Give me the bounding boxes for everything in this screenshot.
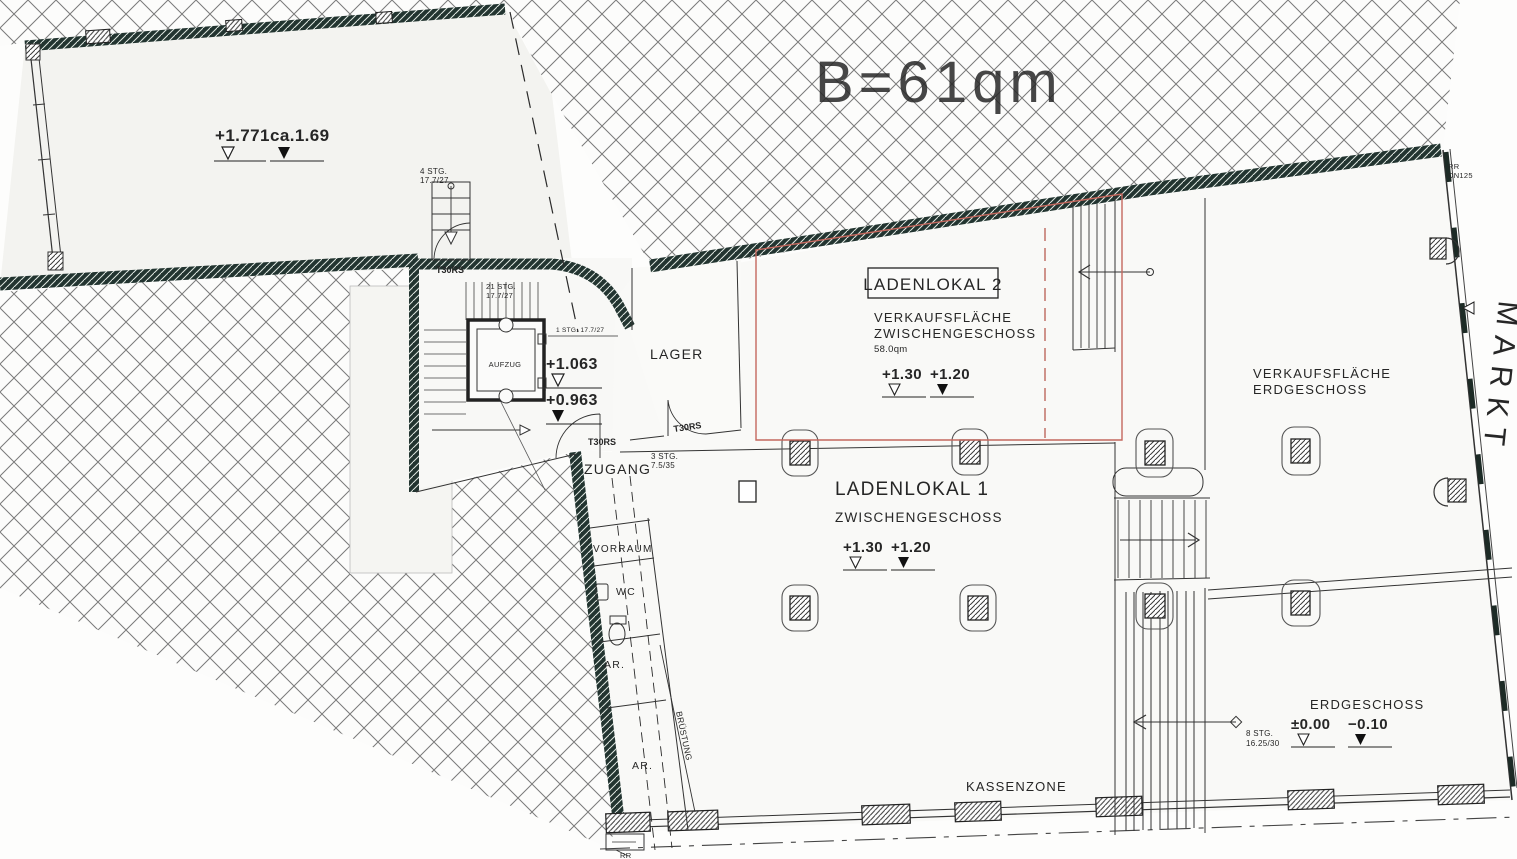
stair-label: 16.25/30	[1246, 739, 1280, 748]
wall-pier	[226, 19, 243, 31]
room-label-wc: WC	[616, 586, 636, 598]
room-subtitle: VERKAUFSFLÄCHE	[874, 310, 1012, 325]
elevation-value: +0.963	[546, 392, 598, 409]
storefront-pier	[1096, 796, 1143, 817]
door-label-t30rs: T30RS	[588, 437, 616, 447]
rainpipe-label: RR	[1448, 162, 1460, 171]
stair-label: 17.7/27	[486, 291, 513, 300]
room-title: ERDGESCHOSS	[1310, 697, 1424, 712]
stair-label: 1 STG. 17.7/27	[556, 327, 604, 334]
stair-label: 7.5/35	[651, 461, 675, 470]
zone-label-kassenzone: KASSENZONE	[966, 779, 1067, 794]
wall-pier	[376, 11, 393, 23]
room-subtitle: VERKAUFSFLÄCHE	[1253, 366, 1391, 381]
floor-plan-page: B=61qm +1.771 ca.1.69 +1.063 +0.963 LADE…	[0, 0, 1517, 859]
rainpipe-label: RR	[620, 851, 632, 859]
elevation-value: +1.20	[891, 539, 931, 556]
elevation-value: −0.10	[1348, 716, 1388, 733]
area-note-red-text: B=61qm	[815, 50, 1063, 115]
elevation-value: +1.30	[882, 366, 922, 383]
room-label-ar: AR.	[632, 760, 653, 772]
storefront-pier	[1288, 789, 1335, 810]
rainpipe-size-label: DN125	[1448, 171, 1473, 180]
room-label-zugang: ZUGANG	[584, 461, 651, 477]
room-label-vorraum: VORRAUM	[593, 544, 653, 555]
elevator-door-symbol	[499, 318, 513, 332]
door-label-t30rs: T30RS	[436, 265, 464, 275]
elevation-value: ±0.00	[1291, 716, 1330, 733]
elevation-value: +1.30	[843, 539, 883, 556]
elevation-value: +1.771	[215, 126, 270, 145]
stair-label: 4 STG.	[420, 167, 447, 176]
room-area: 58.0qm	[874, 344, 908, 355]
storefront-pier	[1438, 784, 1485, 805]
storefront-pier	[606, 812, 651, 833]
storefront-pier	[668, 810, 719, 831]
elevation-value: +1.20	[930, 366, 970, 383]
floor-plan-drawing: B=61qm +1.771 ca.1.69 +1.063 +0.963 LADE…	[0, 0, 1517, 859]
wall-pier	[86, 29, 111, 44]
elevator-door-symbol	[499, 389, 513, 403]
stair-label: 21 STG.	[486, 282, 516, 291]
stair-label: 3 STG.	[651, 452, 678, 461]
storefront-pier	[955, 801, 1002, 822]
stair-label: 8 STG.	[1246, 729, 1273, 738]
storefront-pier	[862, 804, 911, 825]
room-label-aufzug: AUFZUG	[489, 360, 522, 369]
elevation-value: +1.063	[546, 356, 598, 373]
stair-label: 17.7/27	[420, 176, 449, 185]
room-label-ar: AR.	[604, 659, 625, 671]
elevation-value: ca.1.69	[270, 126, 330, 145]
room-label-lager: LAGER	[650, 346, 703, 362]
room-subtitle: ZWISCHENGESCHOSS	[874, 326, 1036, 341]
room-title: LADENLOKAL 2	[863, 275, 1002, 294]
room-title: LADENLOKAL 1	[835, 479, 989, 500]
small-column-square	[739, 481, 756, 502]
room-subtitle: ZWISCHENGESCHOSS	[835, 510, 1003, 525]
room-subtitle: ERDGESCHOSS	[1253, 382, 1367, 397]
